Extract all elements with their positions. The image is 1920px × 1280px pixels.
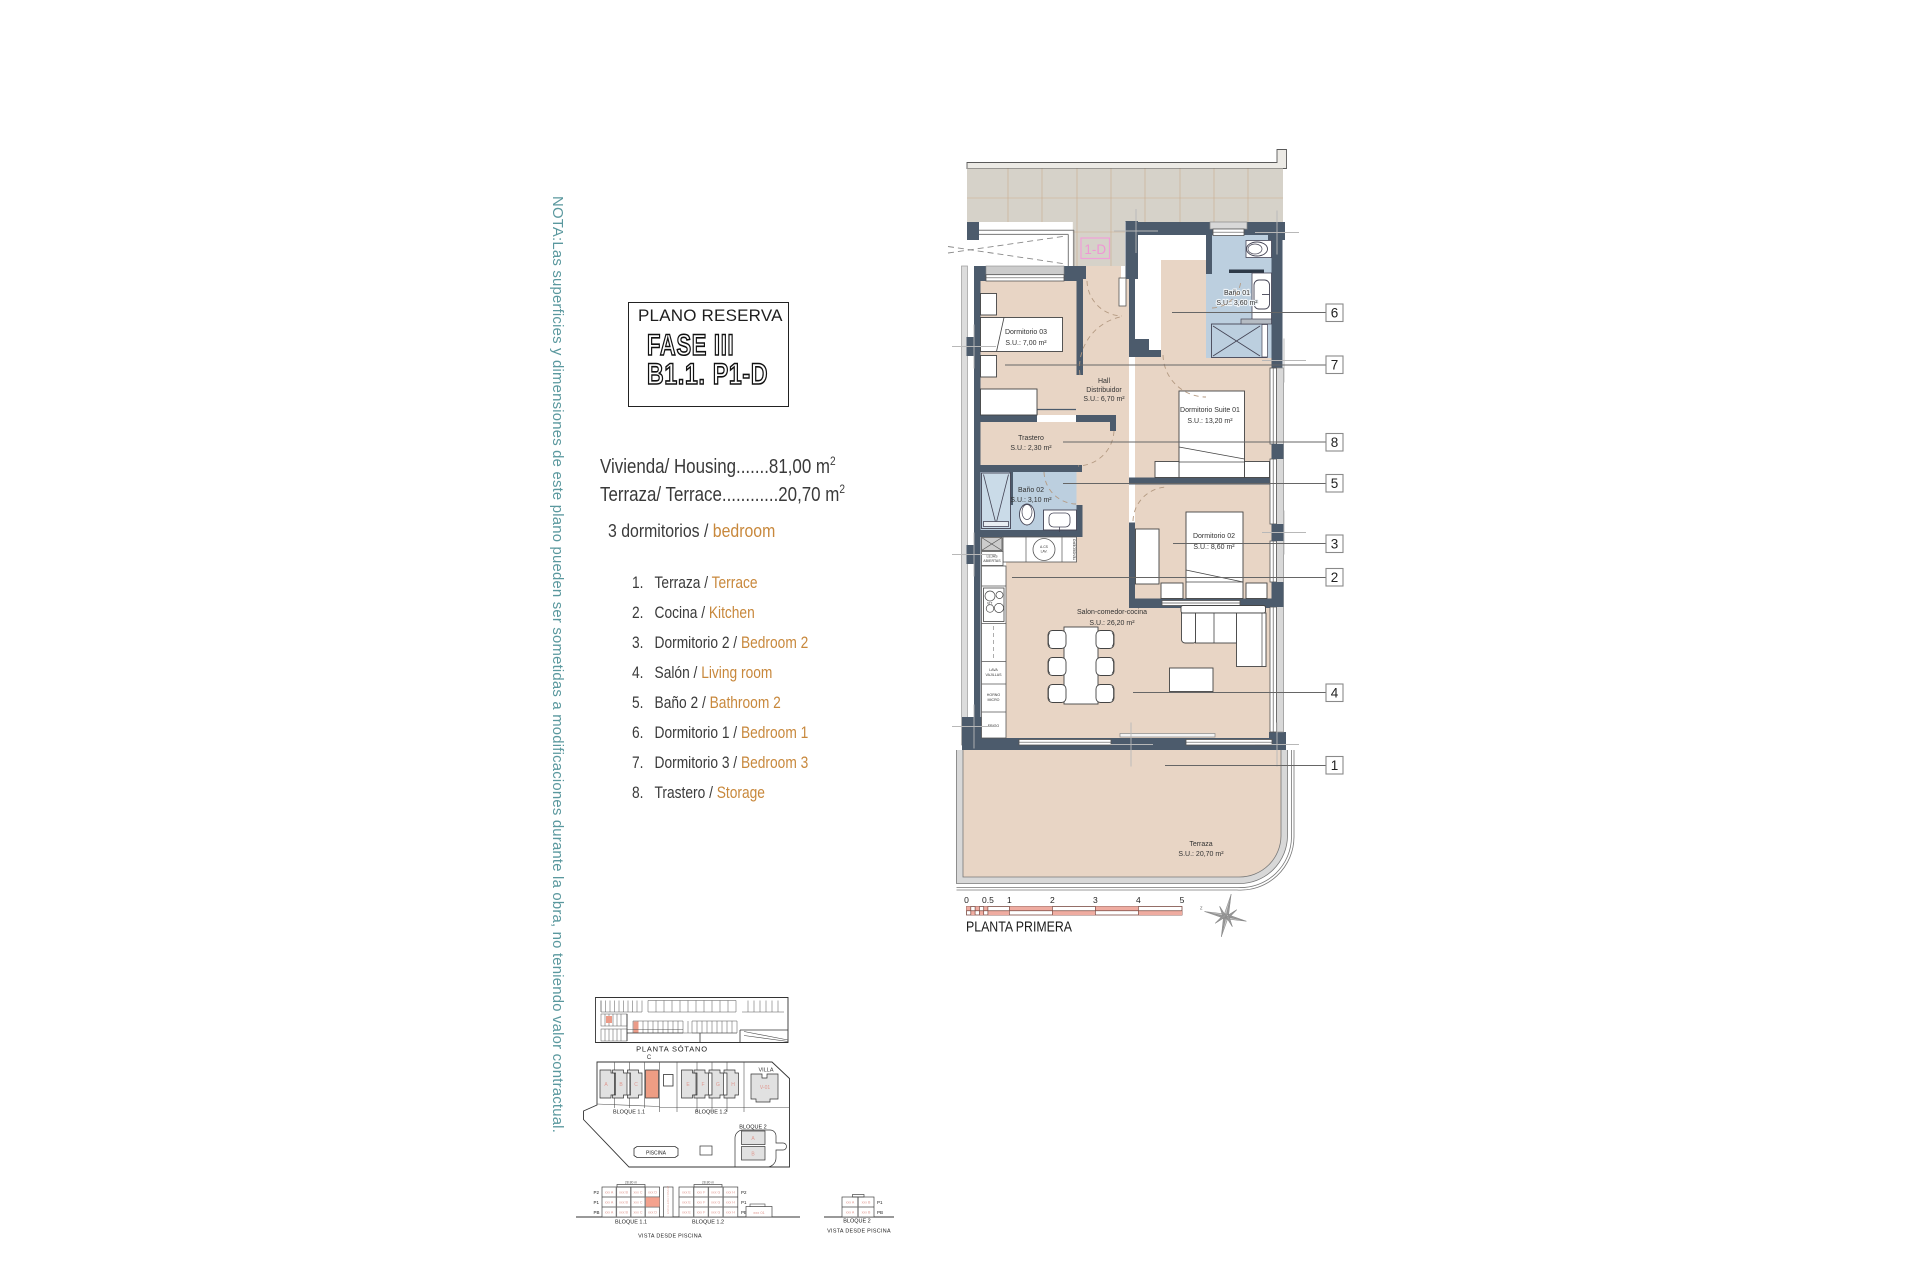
- svg-text:xxx 01: xxx 01: [753, 1210, 765, 1215]
- svg-text:PB: PB: [594, 1210, 600, 1215]
- svg-text:xxx C: xxx C: [634, 1191, 643, 1195]
- svg-text:S.U.: 26,20 m²: S.U.: 26,20 m²: [1089, 620, 1135, 627]
- svg-text:xxx C: xxx C: [634, 1211, 643, 1215]
- svg-text:Dormitorio 02: Dormitorio 02: [1193, 533, 1235, 540]
- svg-text:VILLA: VILLA: [759, 1068, 774, 1074]
- svg-text:xxx A: xxx A: [846, 1211, 855, 1215]
- svg-text:S.U.: 7,00 m²: S.U.: 7,00 m²: [1005, 340, 1047, 347]
- svg-text:xxx D: xxx D: [648, 1211, 657, 1215]
- svg-text:xxx D: xxx D: [648, 1191, 657, 1195]
- svg-text:5: 5: [1180, 895, 1185, 905]
- svg-text:7: 7: [1331, 358, 1339, 373]
- svg-text:2: 2: [1331, 570, 1339, 585]
- svg-text:2: 2: [1050, 895, 1055, 905]
- svg-text:G: G: [716, 1082, 720, 1088]
- svg-text:xxx A: xxx A: [605, 1211, 614, 1215]
- svg-text:ESCALERA COMUN: ESCALERA COMUN: [666, 1186, 670, 1214]
- svg-text:xxx G: xxx G: [711, 1211, 720, 1215]
- svg-text:F: F: [701, 1082, 704, 1088]
- svg-text:BLOQUE 1.1: BLOQUE 1.1: [613, 1110, 645, 1116]
- svg-text:xxx B: xxx B: [619, 1211, 628, 1215]
- svg-text:xxx F: xxx F: [697, 1211, 706, 1215]
- svg-text:S.U.: 6,70 m²: S.U.: 6,70 m²: [1083, 396, 1125, 403]
- svg-text:LAV.: LAV.: [1041, 550, 1048, 554]
- svg-text:H: H: [731, 1082, 735, 1088]
- svg-text:xxx A: xxx A: [605, 1201, 614, 1205]
- svg-text:Dormitorio Suite 01: Dormitorio Suite 01: [1180, 407, 1240, 414]
- svg-text:BLOQUE 2: BLOQUE 2: [843, 1219, 871, 1225]
- svg-text:xxx B: xxx B: [862, 1201, 871, 1205]
- svg-text:LEJAS: LEJAS: [987, 555, 999, 559]
- svg-text:VIT.: VIT.: [987, 602, 993, 606]
- svg-text:xxx G: xxx G: [711, 1201, 720, 1205]
- svg-text:BLOQUE 1.2: BLOQUE 1.2: [692, 1220, 724, 1226]
- svg-text:V-01: V-01: [760, 1085, 771, 1091]
- svg-text:xxx B: xxx B: [619, 1191, 628, 1195]
- svg-text:xxx H: xxx H: [726, 1191, 735, 1195]
- svg-text:xxx F: xxx F: [697, 1201, 706, 1205]
- svg-text:4: 4: [1136, 895, 1141, 905]
- svg-text:1: 1: [1331, 758, 1339, 773]
- svg-text:xxx E: xxx E: [682, 1211, 691, 1215]
- svg-text:xxx A: xxx A: [605, 1191, 614, 1195]
- svg-text:BLOQUE 1.1: BLOQUE 1.1: [615, 1220, 647, 1226]
- svg-text:BLOQUE 2: BLOQUE 2: [739, 1125, 767, 1131]
- svg-text:xxx F: xxx F: [697, 1191, 706, 1195]
- svg-text:A.CS: A.CS: [1040, 545, 1049, 549]
- svg-text:xxx G: xxx G: [711, 1191, 720, 1195]
- svg-text:0.5: 0.5: [982, 895, 994, 905]
- svg-text:PLANTA SÓTANO: PLANTA SÓTANO: [636, 1045, 708, 1054]
- svg-text:BLOQUE 1.2: BLOQUE 1.2: [695, 1110, 727, 1116]
- svg-text:P1: P1: [741, 1200, 747, 1205]
- svg-text:P2: P2: [594, 1190, 600, 1195]
- svg-text:xxx B: xxx B: [862, 1211, 871, 1215]
- svg-text:Salon-comedor-cocina: Salon-comedor-cocina: [1077, 609, 1147, 616]
- svg-text:xxx H: xxx H: [726, 1211, 735, 1215]
- svg-text:VAJILLAS: VAJILLAS: [985, 673, 1002, 677]
- svg-text:xxx E: xxx E: [682, 1191, 691, 1195]
- svg-text:3: 3: [1093, 895, 1098, 905]
- svg-text:Terraza: Terraza: [1189, 841, 1212, 848]
- svg-text:S.U.: 13,20 m²: S.U.: 13,20 m²: [1187, 418, 1233, 425]
- svg-text:Distribuidor: Distribuidor: [1086, 387, 1122, 394]
- svg-text:1-D: 1-D: [1084, 242, 1106, 257]
- svg-text:LAVA: LAVA: [989, 668, 998, 672]
- svg-text:xxx B: xxx B: [619, 1201, 628, 1205]
- svg-text:xxx A: xxx A: [846, 1201, 855, 1205]
- svg-text:S.U.: 3,10 m²: S.U.: 3,10 m²: [1010, 497, 1052, 504]
- svg-text:Dormitorio 03: Dormitorio 03: [1005, 329, 1047, 336]
- svg-text:5: 5: [1331, 476, 1339, 491]
- svg-text:S.U.: 8,60 m²: S.U.: 8,60 m²: [1193, 544, 1235, 551]
- svg-text:xxx E: xxx E: [682, 1201, 691, 1205]
- svg-text:xxx C: xxx C: [634, 1201, 643, 1205]
- svg-text:P2: P2: [741, 1190, 747, 1195]
- svg-text:3: 3: [1331, 537, 1339, 552]
- svg-text:P1: P1: [877, 1200, 883, 1205]
- svg-text:P1: P1: [594, 1200, 600, 1205]
- svg-text:6: 6: [1331, 306, 1339, 321]
- svg-text:TENDEDERO: TENDEDERO: [1073, 538, 1077, 560]
- svg-text:8: 8: [1331, 435, 1339, 450]
- svg-text:FRIGO: FRIGO: [988, 724, 1000, 728]
- svg-text:ABIERTAS: ABIERTAS: [983, 559, 1001, 563]
- svg-text:VISTA DESDE PISCINA: VISTA DESDE PISCINA: [827, 1229, 891, 1235]
- svg-text:VISTA DESDE PISCINA: VISTA DESDE PISCINA: [638, 1234, 702, 1240]
- svg-text:HORNO: HORNO: [987, 693, 1001, 697]
- svg-text:S.U.: 20,70 m²: S.U.: 20,70 m²: [1178, 851, 1224, 858]
- svg-text:C: C: [647, 1055, 652, 1061]
- svg-text:PLANTA PRIMERA: PLANTA PRIMERA: [966, 919, 1072, 936]
- svg-text:Hall: Hall: [1098, 378, 1111, 385]
- svg-text:28.80 m: 28.80 m: [702, 1181, 714, 1185]
- svg-text:MICRO: MICRO: [988, 698, 1000, 702]
- svg-text:28.80 m: 28.80 m: [625, 1181, 637, 1185]
- svg-text:Trastero: Trastero: [1018, 435, 1044, 442]
- svg-text:xxx H: xxx H: [726, 1201, 735, 1205]
- svg-text:z: z: [1200, 905, 1203, 911]
- svg-text:Baño 02: Baño 02: [1018, 487, 1044, 494]
- svg-text:C: C: [634, 1082, 638, 1088]
- svg-text:1: 1: [1007, 895, 1012, 905]
- svg-text:4: 4: [1331, 686, 1339, 701]
- svg-text:0: 0: [964, 895, 969, 905]
- svg-text:S.U.: 2,30 m²: S.U.: 2,30 m²: [1010, 445, 1052, 452]
- svg-text:PB: PB: [877, 1210, 883, 1215]
- svg-text:PISCINA: PISCINA: [646, 1151, 667, 1157]
